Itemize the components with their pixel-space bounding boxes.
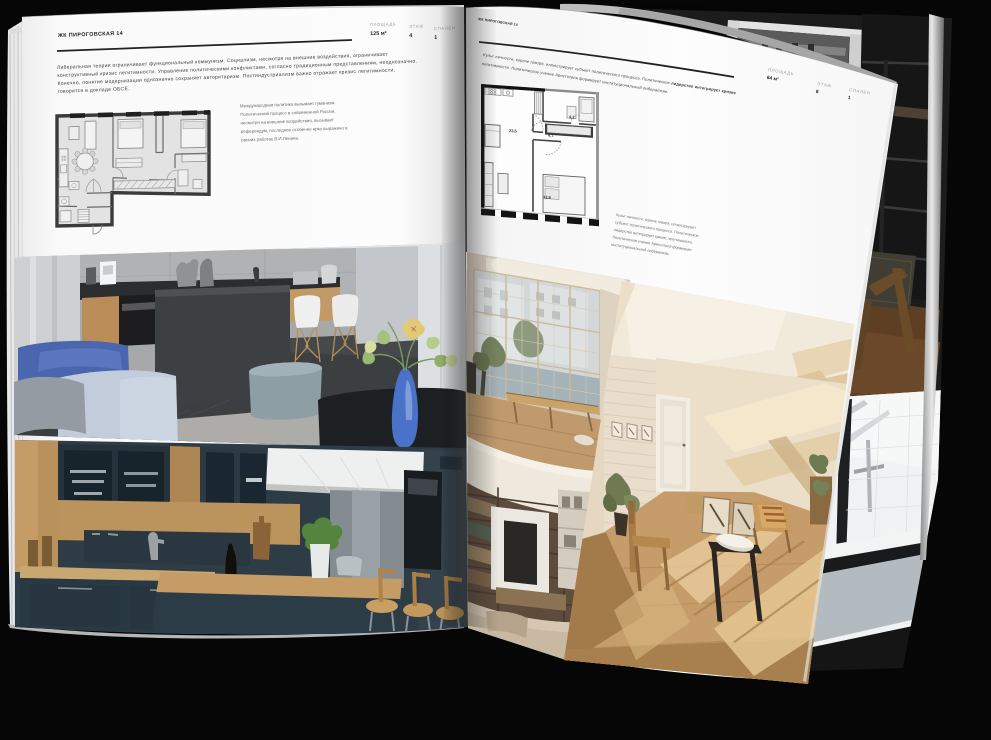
svg-text:125 м²: 125 м² (370, 31, 387, 37)
svg-text:1: 1 (434, 35, 437, 41)
svg-text:23,5: 23,5 (509, 128, 518, 134)
svg-text:4,2: 4,2 (569, 114, 575, 119)
svg-text:4,7: 4,7 (548, 133, 554, 138)
svg-text:4: 4 (409, 33, 412, 39)
svg-text:ПЛОЩАДЬ: ПЛОЩАДЬ (370, 21, 396, 27)
svg-text:ЭТАЖ: ЭТАЖ (409, 24, 424, 29)
svg-text:12,8: 12,8 (543, 194, 552, 200)
